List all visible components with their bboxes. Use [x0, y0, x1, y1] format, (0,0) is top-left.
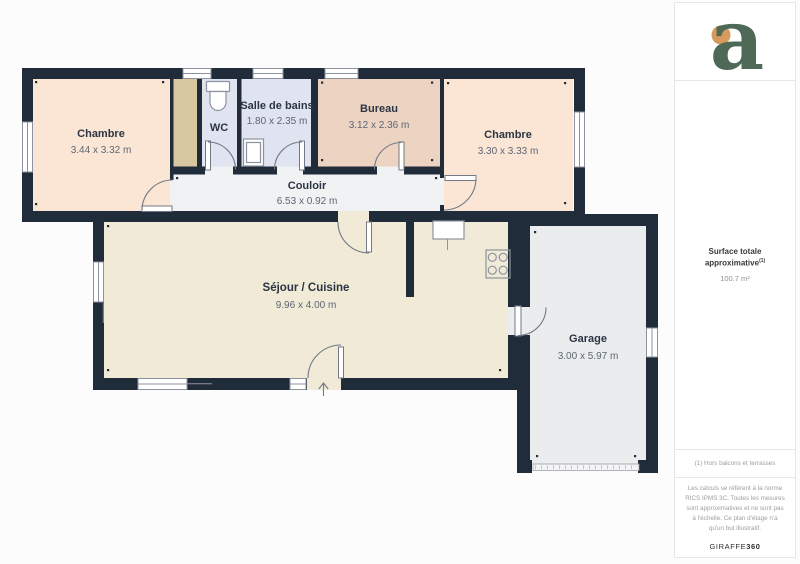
room-dims-sejour: 9.96 x 4.00 m [276, 300, 337, 311]
room-dims-chambre-2: 3.30 x 3.33 m [478, 146, 539, 157]
surface-label-text: Surface totale approximative [705, 247, 762, 267]
room-label-bureau: Bureau [360, 103, 398, 115]
floorplan-page: Chambre 3.44 x 3.32 m WC Salle de bains … [0, 0, 800, 564]
room-label-sejour: Séjour / Cuisine [263, 282, 350, 294]
brand-logo-icon: a [675, 4, 795, 80]
door-leaf [206, 141, 211, 170]
brand-suffix: 360 [746, 542, 760, 551]
legal-section: Les calculs se réfèrent à la norme RICS … [675, 478, 795, 557]
logo-section: a [675, 3, 795, 81]
room-dims-salle-de-bains: 1.80 x 2.35 m [247, 116, 308, 127]
surface-superscript: (1) [759, 258, 765, 264]
garage-door [533, 464, 639, 471]
door-leaf [367, 222, 372, 252]
room-label-salle-de-bains: Salle de bains [240, 100, 313, 112]
door-leaf [142, 206, 172, 212]
giraffe360-brand: GIRAFFE360 [709, 542, 760, 551]
sidebar: a Surface totale approximative(1) 100.7 … [674, 2, 796, 558]
room-dims-garage: 3.00 x 5.97 m [558, 351, 619, 362]
room-dims-chambre-1: 3.44 x 3.32 m [71, 145, 132, 156]
room-label-chambre-2: Chambre [484, 129, 532, 141]
surface-total-value: 100.7 m² [720, 274, 750, 283]
footnote-section: (1) Hors balcons et terrasses [675, 450, 795, 478]
room-dims-couloir: 6.53 x 0.92 m [277, 196, 338, 207]
room-chambre-2 [444, 79, 573, 211]
bathroom-sink-icon [244, 139, 264, 166]
room-label-garage: Garage [569, 333, 607, 345]
surface-total-label: Surface totale approximative(1) [683, 247, 787, 268]
door-leaf [300, 141, 305, 170]
room-label-wc: WC [210, 122, 228, 134]
footnote-text: (1) Hors balcons et terrasses [695, 460, 776, 467]
door-leaf [399, 142, 404, 170]
room-dims-bureau: 3.12 x 2.36 m [349, 120, 410, 131]
room-garage [530, 226, 646, 464]
room-fills [33, 79, 646, 464]
room-label-chambre-1: Chambre [77, 128, 125, 140]
door-leaf [339, 347, 344, 378]
room-closet [174, 79, 198, 167]
logo-letter: a [710, 4, 764, 80]
floor-plan: Chambre 3.44 x 3.32 m WC Salle de bains … [0, 0, 674, 564]
brand-name: GIRAFFE [709, 542, 746, 551]
disclaimer-text: Les calculs se réfèrent à la norme RICS … [685, 484, 785, 534]
door-leaf [515, 306, 521, 336]
door-leaf [445, 176, 476, 181]
room-label-couloir: Couloir [288, 180, 327, 192]
surface-section: Surface totale approximative(1) 100.7 m² [675, 81, 795, 450]
